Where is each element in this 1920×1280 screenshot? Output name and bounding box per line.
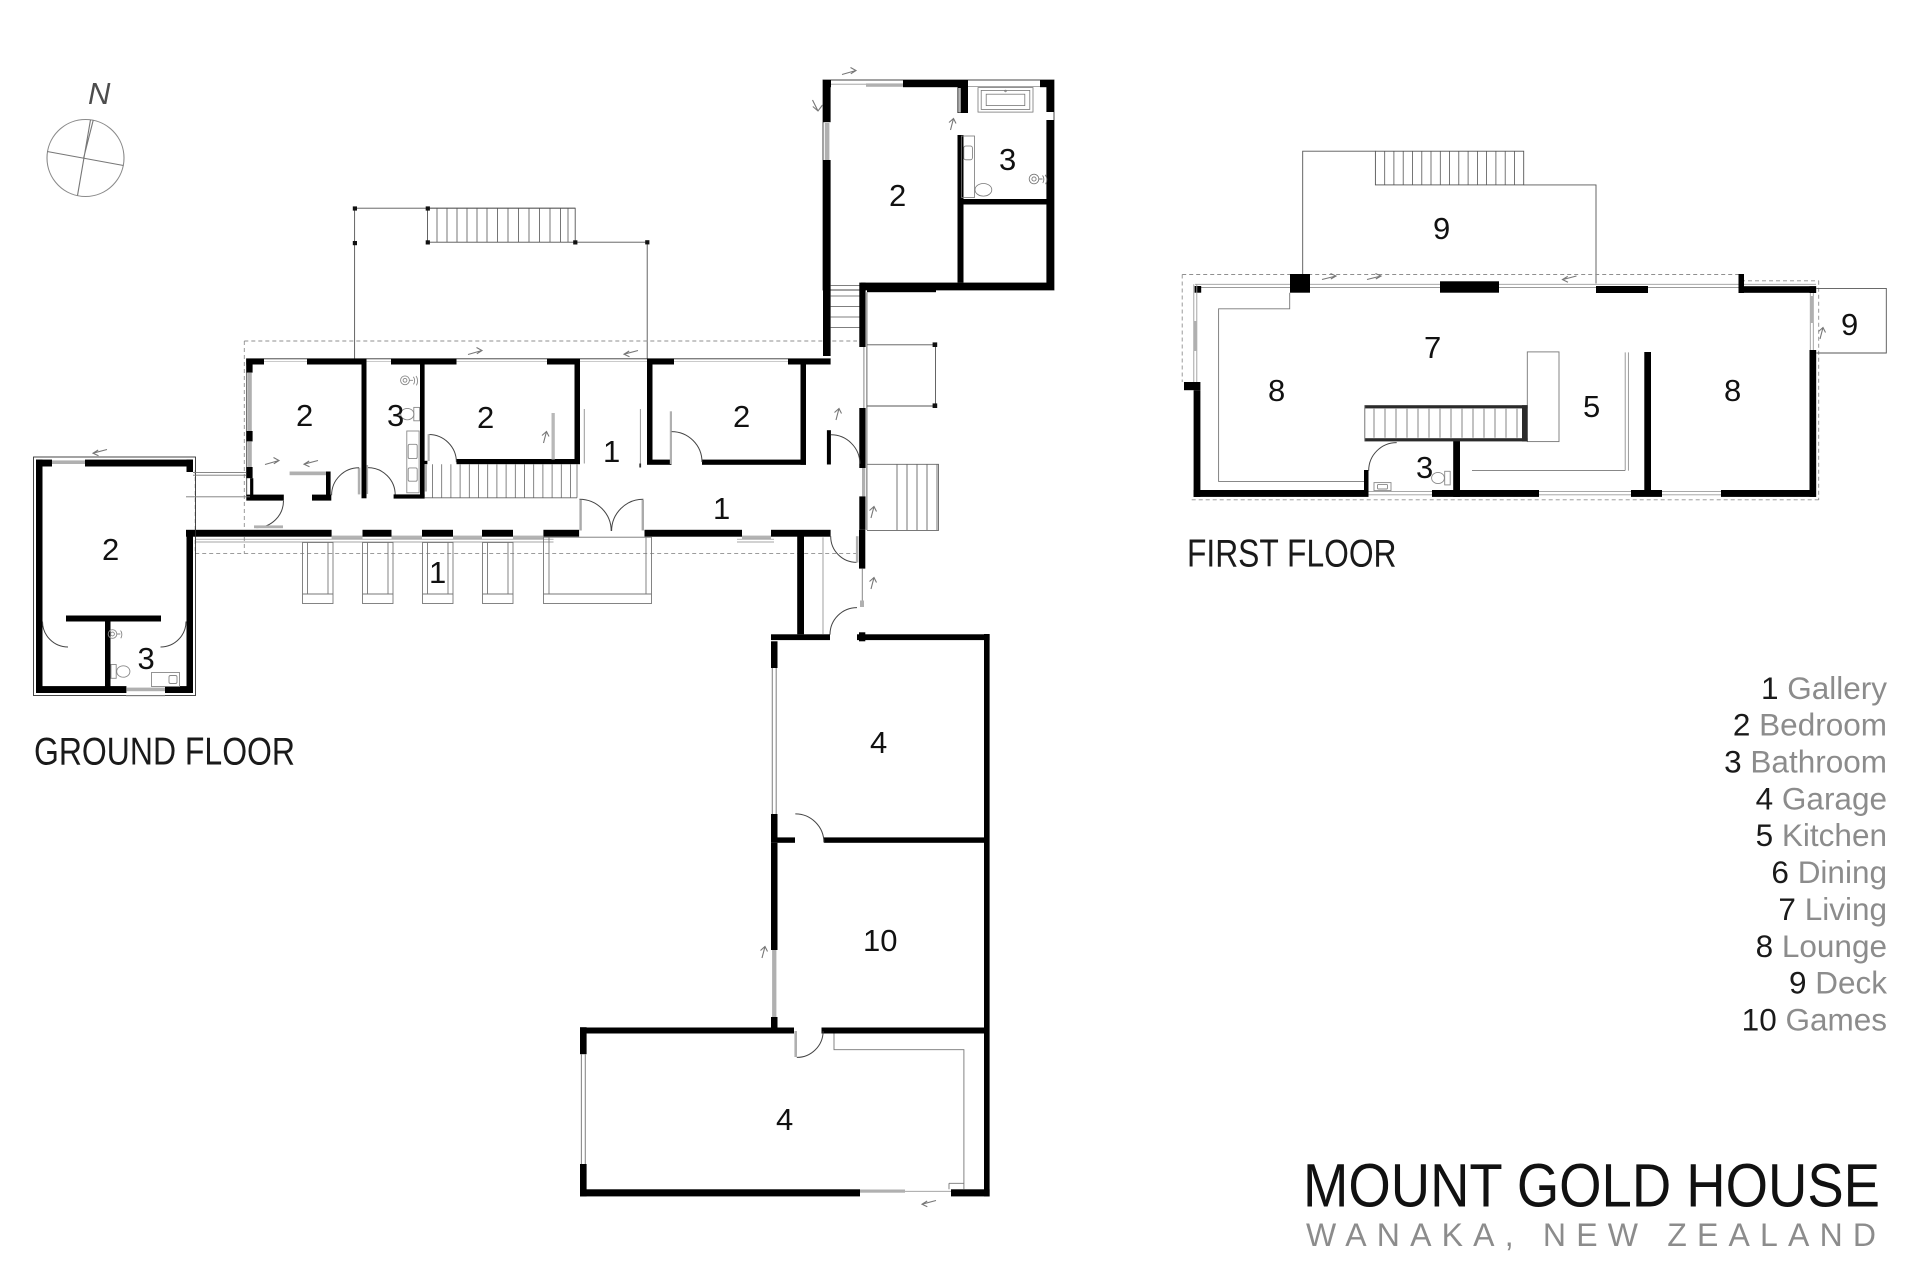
svg-text:1 Gallery: 1 Gallery — [1761, 670, 1887, 706]
svg-text:2: 2 — [102, 532, 119, 567]
svg-text:1: 1 — [429, 555, 446, 590]
svg-text:2: 2 — [477, 400, 494, 435]
svg-text:3 Bathroom: 3 Bathroom — [1724, 744, 1887, 780]
svg-text:3: 3 — [138, 641, 155, 676]
svg-text:2: 2 — [296, 398, 313, 433]
svg-text:1: 1 — [603, 434, 620, 469]
svg-text:9: 9 — [1433, 211, 1450, 246]
svg-text:7: 7 — [1424, 330, 1441, 365]
svg-text:GROUND FLOOR: GROUND FLOOR — [34, 731, 295, 774]
svg-text:8: 8 — [1268, 373, 1285, 408]
svg-text:5: 5 — [1583, 389, 1600, 424]
svg-text:1: 1 — [713, 491, 730, 526]
svg-text:5 Kitchen: 5 Kitchen — [1756, 817, 1887, 853]
svg-text:7 Living: 7 Living — [1778, 891, 1887, 927]
svg-text:2: 2 — [889, 178, 906, 213]
svg-text:9 Deck: 9 Deck — [1789, 965, 1887, 1001]
svg-text:4 Garage: 4 Garage — [1756, 780, 1887, 816]
svg-text:8 Lounge: 8 Lounge — [1756, 928, 1887, 964]
svg-text:FIRST FLOOR: FIRST FLOOR — [1187, 533, 1397, 576]
svg-text:4: 4 — [776, 1102, 793, 1137]
svg-text:10 Games: 10 Games — [1742, 1002, 1887, 1038]
svg-text:2 Bedroom: 2 Bedroom — [1733, 707, 1887, 743]
svg-text:WANAKA, NEW ZEALAND: WANAKA, NEW ZEALAND — [1306, 1217, 1886, 1253]
svg-text:10: 10 — [863, 923, 897, 958]
svg-text:8: 8 — [1724, 373, 1741, 408]
svg-text:3: 3 — [999, 142, 1016, 177]
svg-text:3: 3 — [387, 398, 404, 433]
svg-text:4: 4 — [870, 725, 887, 760]
svg-text:MOUNT GOLD HOUSE: MOUNT GOLD HOUSE — [1303, 1152, 1880, 1221]
svg-text:9: 9 — [1841, 307, 1858, 342]
svg-text:3: 3 — [1416, 450, 1433, 485]
svg-text:N: N — [88, 76, 111, 111]
svg-text:2: 2 — [733, 399, 750, 434]
svg-text:6 Dining: 6 Dining — [1771, 854, 1887, 890]
